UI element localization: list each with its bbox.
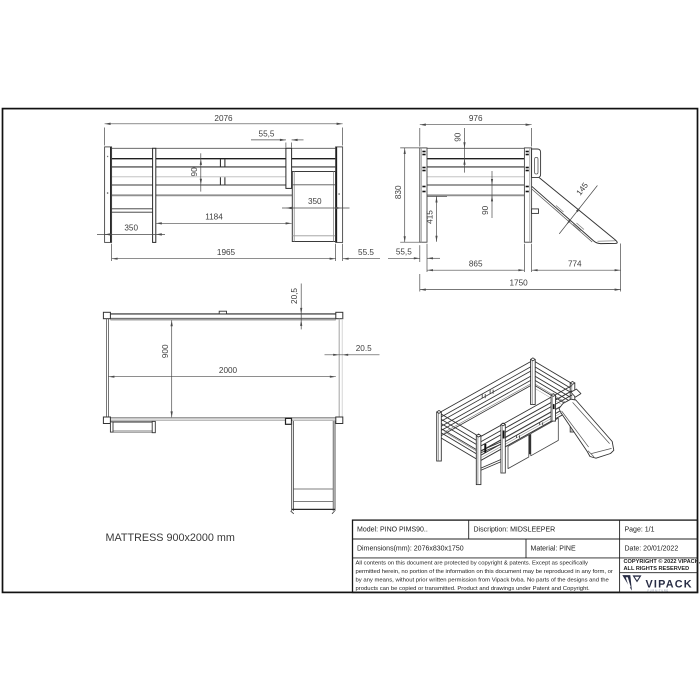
svg-text:by any means, without prior wr: by any means, without prior written perm…: [356, 578, 610, 584]
svg-text:MATTRESS 900x2000 mm: MATTRESS 900x2000 mm: [106, 532, 235, 544]
svg-text:976: 976: [469, 114, 483, 123]
svg-text:F U R N I T U R E: F U R N I T U R E: [648, 589, 669, 593]
svg-text:1184: 1184: [205, 213, 223, 222]
svg-text:1750: 1750: [509, 279, 528, 288]
svg-text:55,5: 55,5: [396, 247, 412, 256]
svg-text:350: 350: [124, 224, 138, 233]
svg-text:products can be copied or tran: products can be copied or transmitted. P…: [356, 586, 590, 592]
svg-text:Model: PINO PIMS90..: Model: PINO PIMS90..: [357, 527, 428, 534]
svg-text:COPYRIGHT © 2022 VIPACK,: COPYRIGHT © 2022 VIPACK,: [624, 558, 700, 565]
svg-text:90: 90: [190, 167, 199, 177]
svg-text:Dimensions(mm): 2076x830x1750: Dimensions(mm): 2076x830x1750: [357, 546, 464, 553]
svg-text:774: 774: [568, 259, 582, 268]
svg-text:Material: PINE: Material: PINE: [531, 546, 576, 553]
svg-text:All contents on this document: All contents on this document are protec…: [356, 561, 589, 567]
svg-text:Date: 20/01/2022: Date: 20/01/2022: [625, 546, 679, 553]
svg-text:Discription: MIDSLEEPER: Discription: MIDSLEEPER: [474, 527, 556, 534]
svg-text:ALL RIGHTS RESERVED: ALL RIGHTS RESERVED: [624, 566, 690, 572]
svg-text:55,5: 55,5: [259, 130, 275, 139]
svg-text:415: 415: [426, 210, 435, 224]
svg-text:20.5: 20.5: [356, 344, 372, 353]
svg-text:90: 90: [454, 132, 463, 142]
svg-text:865: 865: [469, 259, 483, 268]
svg-text:350: 350: [308, 197, 322, 206]
svg-text:90: 90: [481, 205, 490, 215]
svg-text:830: 830: [394, 185, 403, 199]
svg-text:permitted herein, no portion o: permitted herein, no portion of the info…: [356, 569, 613, 575]
svg-text:1965: 1965: [217, 248, 236, 257]
svg-text:Page: 1/1: Page: 1/1: [625, 527, 655, 534]
svg-text:55.5: 55.5: [358, 248, 374, 257]
svg-text:2000: 2000: [219, 366, 238, 375]
svg-text:900: 900: [161, 344, 170, 358]
svg-text:2076: 2076: [214, 114, 233, 123]
svg-text:20,5: 20,5: [290, 288, 299, 304]
